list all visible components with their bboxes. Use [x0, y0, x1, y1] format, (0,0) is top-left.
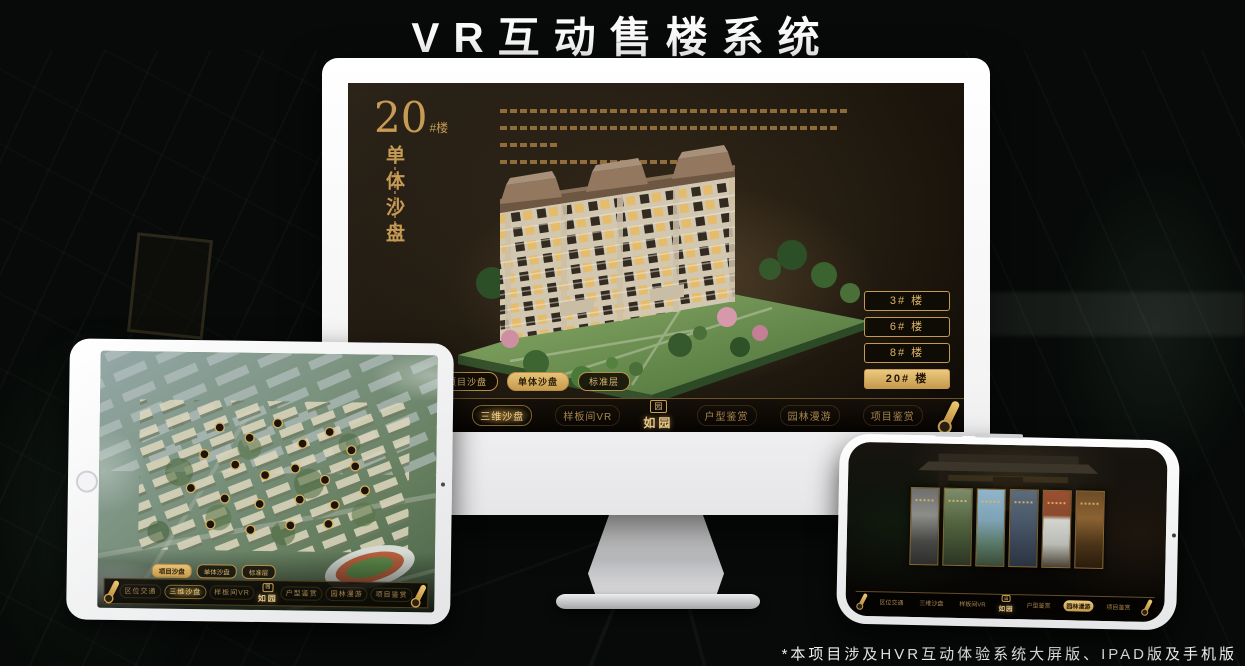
headline-block: 20#楼 单体沙盘 — [374, 97, 448, 257]
gallery-card[interactable] — [942, 488, 973, 567]
tab-single-sandtable[interactable]: 单体沙盘 — [507, 372, 569, 391]
floor-button-3[interactable]: 3# 楼 — [864, 291, 950, 311]
nav-item-project-view[interactable]: 项目鉴赏 — [863, 405, 923, 426]
brand-logo-icon: 园 — [262, 583, 273, 592]
nav-item-showroom-vr[interactable]: 样板间VR — [555, 405, 620, 426]
background-photo-strip — [985, 292, 1245, 336]
brand-logo-icon: 园 — [1002, 595, 1011, 602]
tablet-subtabs: 项目沙盘 单体沙盘 标准层 — [152, 563, 276, 579]
brand-logo-text: 如园 — [258, 592, 278, 603]
background-plaque — [127, 232, 213, 339]
scroll-handle-icon[interactable] — [412, 584, 427, 607]
phone-device: 区位交通 三维沙盘 样板间VR 园 如园 户型鉴赏 园林漫游 项目鉴赏 — [836, 433, 1180, 630]
page-title: VR互动售楼系统 — [0, 4, 1245, 65]
sandtable-subtabs: 项目沙盘 单体沙盘 标准层 — [436, 372, 630, 391]
phone-nav-3d-sandtable[interactable]: 三维沙盘 — [916, 597, 946, 609]
nav-item-garden-roam[interactable]: 园林漫游 — [780, 405, 840, 426]
floor-button-6[interactable]: 6# 楼 — [864, 317, 950, 337]
scroll-handle-icon[interactable] — [857, 593, 868, 609]
footnote-caption: *本项目涉及HVR互动体验系统大屏版、IPAD版及手机版 — [782, 643, 1237, 664]
tablet-screen: 项目沙盘 单体沙盘 标准层 区位交通 三维沙盘 样板间VR 园 如园 户型鉴赏 … — [97, 351, 438, 613]
phone-screen: 区位交通 三维沙盘 样板间VR 园 如园 户型鉴赏 园林漫游 项目鉴赏 — [845, 442, 1168, 623]
phone-power-button[interactable] — [975, 433, 1023, 438]
brand-logo-text: 如园 — [643, 414, 673, 431]
tab-standard-floor[interactable]: 标准层 — [578, 372, 630, 391]
brand-logo: 园 如园 — [998, 595, 1013, 613]
nav-item-3d-sandtable[interactable]: 三维沙盘 — [472, 405, 532, 426]
floor-button-20[interactable]: 20# 楼 — [864, 369, 950, 389]
tablet-nav-location-traffic[interactable]: 区位交通 — [119, 584, 161, 599]
brand-logo-icon: 园 — [650, 400, 667, 413]
gallery-card[interactable] — [1074, 490, 1105, 569]
monitor-stand-base — [556, 594, 760, 609]
headline-vertical-caption-deco — [394, 149, 396, 245]
description-line — [500, 109, 848, 113]
tablet-tab-standard-floor[interactable]: 标准层 — [242, 565, 276, 579]
floor-button-8[interactable]: 8# 楼 — [864, 343, 950, 363]
tablet-camera-icon — [441, 482, 445, 486]
gallery-card[interactable] — [909, 487, 940, 566]
headline-number: 20 — [374, 93, 427, 142]
tablet-nav-showroom-vr[interactable]: 样板间VR — [209, 585, 255, 600]
phone-volume-button[interactable] — [935, 432, 963, 437]
brand-logo: 园 如园 — [643, 400, 673, 431]
scroll-handle-icon[interactable] — [105, 580, 120, 603]
scroll-handle-icon[interactable] — [1142, 599, 1153, 615]
panorama-gallery — [909, 487, 1105, 569]
poster-stage: VR互动售楼系统 20#楼 单体沙盘 — [0, 0, 1245, 666]
description-line — [500, 126, 838, 130]
phone-nav-project-view[interactable]: 项目鉴赏 — [1103, 601, 1133, 613]
phone-camera-icon — [1172, 533, 1176, 537]
tablet-home-button[interactable] — [76, 470, 98, 492]
gallery-card[interactable] — [975, 488, 1006, 567]
brand-logo-text: 如园 — [998, 603, 1013, 613]
phone-bottom-nav: 区位交通 三维沙盘 样板间VR 园 如园 户型鉴赏 园林漫游 项目鉴赏 — [855, 591, 1154, 616]
building-3d-model[interactable] — [440, 133, 880, 408]
gallery-card[interactable] — [1041, 490, 1072, 569]
tablet-nav-project-view[interactable]: 项目鉴赏 — [370, 588, 412, 603]
brand-logo: 园 如园 — [258, 582, 278, 603]
phone-nav-showroom-vr[interactable]: 样板间VR — [956, 597, 989, 609]
tablet-nav-garden-roam[interactable]: 园林漫游 — [326, 587, 368, 602]
tablet-device: 项目沙盘 单体沙盘 标准层 区位交通 三维沙盘 样板间VR 园 如园 户型鉴赏 … — [66, 338, 454, 624]
phone-nav-floorplan[interactable]: 户型鉴赏 — [1023, 599, 1053, 611]
nav-item-floorplan[interactable]: 户型鉴赏 — [697, 405, 757, 426]
scroll-handle-icon[interactable] — [939, 399, 960, 431]
phone-nav-garden-roam[interactable]: 园林漫游 — [1063, 600, 1093, 612]
tablet-tab-single-sandtable[interactable]: 单体沙盘 — [197, 564, 237, 579]
tablet-bottom-nav: 区位交通 三维沙盘 样板间VR 园 如园 户型鉴赏 园林漫游 项目鉴赏 — [103, 578, 428, 609]
phone-nav-location-traffic[interactable]: 区位交通 — [876, 596, 906, 608]
tablet-tab-project-sandtable[interactable]: 项目沙盘 — [152, 563, 192, 578]
floor-button-group: 3# 楼 6# 楼 8# 楼 20# 楼 — [864, 291, 950, 389]
tablet-nav-3d-sandtable[interactable]: 三维沙盘 — [164, 585, 206, 600]
monitor-stand-neck — [588, 513, 724, 597]
gallery-card[interactable] — [1008, 489, 1039, 568]
tablet-nav-floorplan[interactable]: 户型鉴赏 — [281, 586, 323, 601]
